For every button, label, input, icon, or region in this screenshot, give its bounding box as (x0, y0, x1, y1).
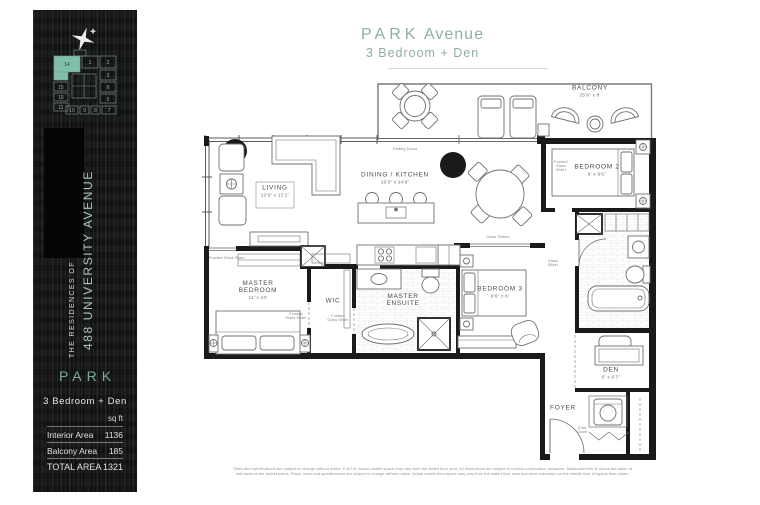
area-label: Balcony Area (47, 446, 97, 456)
area-value: 185 (109, 446, 123, 456)
sidebar-plan-type: 3 Bedroom + Den (33, 396, 137, 407)
window-wall-left (202, 140, 212, 247)
area-label: TOTAL AREA (47, 462, 101, 472)
dining-table-set (449, 143, 551, 245)
toilet (422, 269, 439, 277)
svg-text:8: 8 (94, 108, 97, 114)
room-label-dining-kitchen: DINING / KITCHEN19'3" x 14'9" (361, 172, 429, 185)
room-label-den: DEN6' x 6'7" (602, 367, 620, 380)
kitchen-counter (357, 245, 460, 265)
svg-text:11: 11 (58, 105, 63, 111)
column (440, 152, 466, 178)
building-name: 488 UNIVERSITY AVENUE (81, 130, 95, 350)
sidebar-plan-name: PARK (33, 368, 137, 384)
room-label-master-ensuite: MASTER ENSUITE (379, 293, 427, 307)
armchair (219, 144, 244, 171)
armchair (219, 196, 246, 225)
building-prefix: THE RESIDENCES OF (69, 248, 76, 358)
annotation-frosted-slider: Frosted Glass Slider (285, 312, 307, 320)
bedroom3-desk (458, 336, 516, 348)
room-label-balcony: BALCONY25'9" x 8' (572, 85, 608, 98)
plan-title: PARK Avenue 3 Bedroom + Den (200, 26, 645, 60)
sidebar-dark-panel (44, 128, 84, 258)
laundry-closet (589, 396, 629, 440)
svg-text:15: 15 (58, 85, 64, 91)
area-value: 1136 (105, 430, 123, 440)
svg-text:1: 1 (89, 60, 92, 66)
svg-text:3: 3 (107, 73, 110, 79)
plan-subtitle: 3 Bedroom + Den (200, 46, 645, 60)
floorplan: BALCONY25'9" x 8' LIVING12'9" x 12'1" DI… (200, 78, 665, 463)
area-row-total: TOTAL AREA 1321 (47, 458, 123, 474)
header-rule (388, 68, 548, 69)
annotation-folding-doors: Folding Doors (393, 147, 417, 151)
hall-shower (576, 214, 602, 234)
annotation-frosted-slider: Frosted Glass Slider (327, 314, 349, 322)
room-label-wic: WIC (326, 298, 341, 305)
room-label-living: LIVING12'9" x 12'1" (261, 185, 290, 198)
annotation-glass-slider: Glass Slider (544, 259, 562, 267)
area-value: 1321 (103, 462, 123, 472)
area-row-interior: Interior Area 1136 (47, 426, 123, 442)
disclaimer: Sizes and specifications are subject to … (200, 466, 665, 476)
room-label-foyer: FOYER (550, 405, 576, 412)
svg-text:7: 7 (108, 108, 111, 114)
bifold-doors (589, 432, 629, 440)
bathtub (588, 286, 649, 311)
keyplate-unit-highlight: 14 (64, 62, 70, 68)
room-label-master-bedroom: MASTER BEDROOM11' x 10' (229, 280, 287, 300)
svg-text:6: 6 (107, 85, 110, 91)
tv-console (250, 232, 308, 246)
kitchen-island (358, 193, 434, 224)
area-label: Interior Area (47, 430, 93, 440)
plan-name: PARK (361, 26, 419, 43)
annotation-coat-closet: Coat Closet (572, 426, 592, 434)
svg-text:5: 5 (107, 97, 110, 103)
pantry-closet (301, 246, 325, 267)
annotation-glass-sliders: Glass Sliders (486, 235, 509, 239)
room-label-bedroom3: BEDROOM 39'6" x 8' (477, 286, 522, 299)
master-bed (209, 254, 310, 354)
keyplate-diagram: 14 1 2 15 3 16 6 11 5 10 9 8 7 (46, 46, 124, 118)
area-row-balcony: Balcony Area 185 (47, 442, 123, 458)
svg-text:9: 9 (83, 108, 86, 114)
svg-text:16: 16 (58, 95, 64, 101)
sqft-unit-label: sq ft (47, 414, 123, 423)
brochure-page: 14 1 2 15 3 16 6 11 5 10 9 8 7 488 UNIVE… (0, 0, 760, 505)
svg-text:2: 2 (107, 60, 110, 66)
entry-door-arc (550, 419, 584, 453)
plan-suffix: Avenue (424, 26, 484, 43)
svg-text:10: 10 (69, 108, 75, 114)
disclaimer-line2: wall faces at the widest points. Plans, … (200, 471, 665, 476)
annotation-frosted-slider: Frosted Glass Slider (551, 160, 571, 172)
room-label-bedroom2: BEDROOM 29' x 9'6" (574, 164, 619, 177)
annotation-frosted-slider: Frosted Glass Slider (209, 256, 245, 260)
sidebar: 14 1 2 15 3 16 6 11 5 10 9 8 7 488 UNIVE… (33, 10, 137, 492)
balcony-curved-chairs (551, 105, 638, 132)
balcony-loungers (478, 96, 549, 138)
floorplan-drawing (200, 78, 665, 463)
bathtub-oval (362, 324, 414, 344)
